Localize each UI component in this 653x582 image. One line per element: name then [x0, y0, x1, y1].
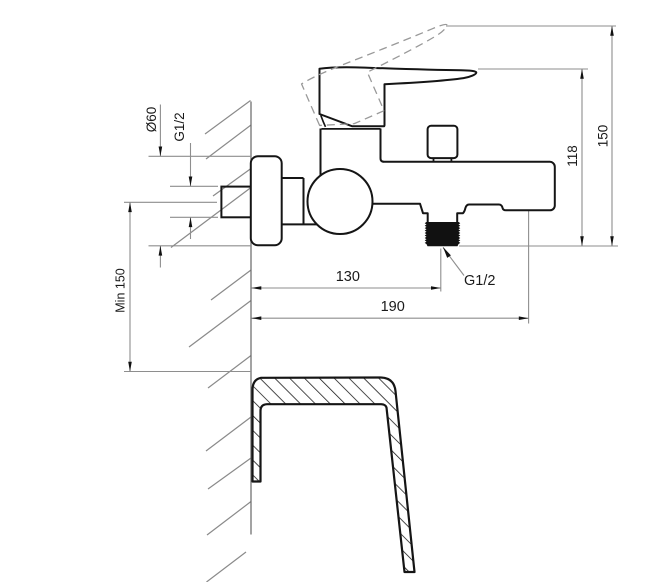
svg-text:150: 150 [595, 125, 610, 148]
svg-text:G1/2: G1/2 [464, 273, 495, 289]
svg-text:Min 150: Min 150 [114, 268, 128, 313]
svg-text:G1/2: G1/2 [172, 112, 187, 141]
svg-text:190: 190 [381, 299, 405, 315]
svg-text:118: 118 [565, 145, 580, 167]
svg-text:130: 130 [336, 269, 360, 285]
svg-text:Ø60: Ø60 [144, 107, 159, 133]
